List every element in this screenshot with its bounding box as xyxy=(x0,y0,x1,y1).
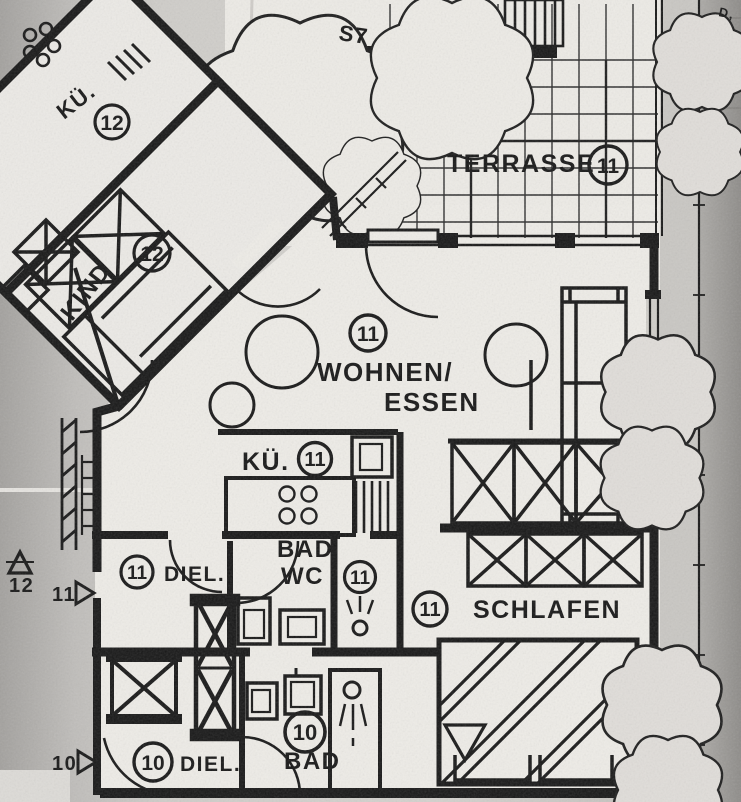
scan-grain xyxy=(0,0,741,802)
floor-plan-drawing: KÜ. 12 KIND 12 xyxy=(0,0,741,802)
floor-plan-scan: KÜ. 12 KIND 12 xyxy=(0,0,741,802)
